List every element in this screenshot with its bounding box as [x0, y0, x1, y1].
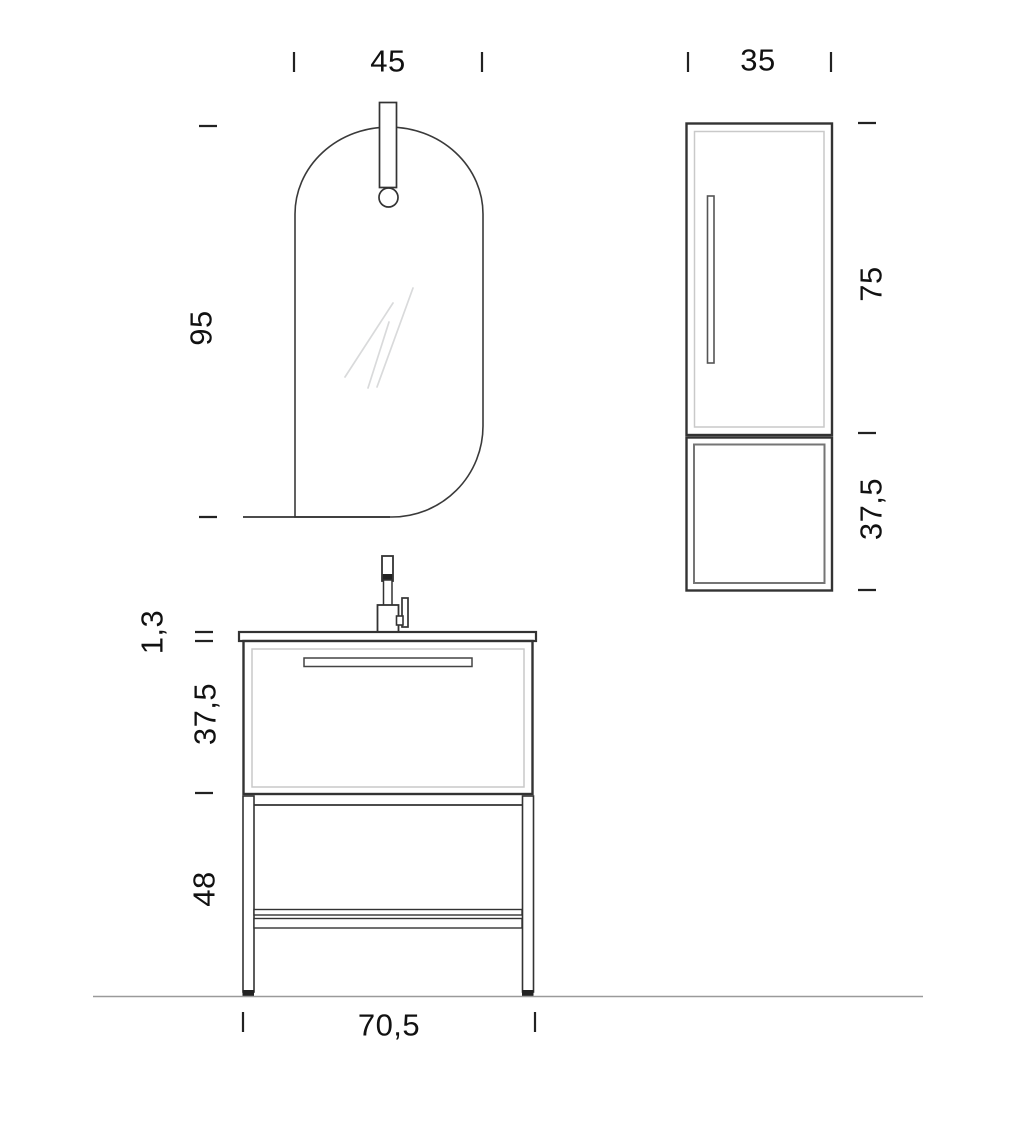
faucet-neck [384, 580, 393, 607]
faucet-handle-band [383, 574, 393, 580]
lamp-bulb [379, 188, 398, 207]
vanity-front-view [93, 556, 923, 997]
left-foot [243, 990, 255, 997]
dim-label-cabinet-width: 35 [740, 45, 775, 76]
dim-label-vanity-drawer-height: 37,5 [190, 683, 221, 745]
dim-label-vanity-width: 70,5 [358, 1010, 420, 1041]
tall-cabinet-side-view [687, 124, 833, 591]
dim-label-cabinet-upper-height: 75 [856, 266, 887, 301]
technical-drawing-canvas: 45 35 95 75 37,5 1,3 37,5 48 70,5 [0, 0, 1020, 1122]
bottom-shelf [254, 919, 522, 929]
tall-cabinet-open-box [687, 438, 833, 591]
faucet [378, 556, 409, 636]
countertop [239, 632, 536, 641]
line-art [0, 0, 1020, 1122]
tall-cabinet-handle [708, 196, 715, 363]
dim-label-mirror-height: 95 [186, 310, 217, 345]
dim-label-mirror-width: 45 [370, 46, 405, 77]
drawer-handle [304, 658, 472, 667]
left-leg [243, 796, 254, 992]
wall-lamp [380, 103, 397, 188]
mirror-front-view [243, 103, 483, 518]
bottom-shelf-front-rail [254, 910, 522, 916]
dim-label-countertop-thickness: 1,3 [137, 610, 168, 655]
faucet-spout-joint [397, 616, 404, 625]
dim-label-cabinet-lower-height: 37,5 [856, 478, 887, 540]
dim-label-vanity-leg-height: 48 [189, 871, 220, 906]
right-foot [522, 990, 534, 997]
right-leg [523, 796, 534, 992]
